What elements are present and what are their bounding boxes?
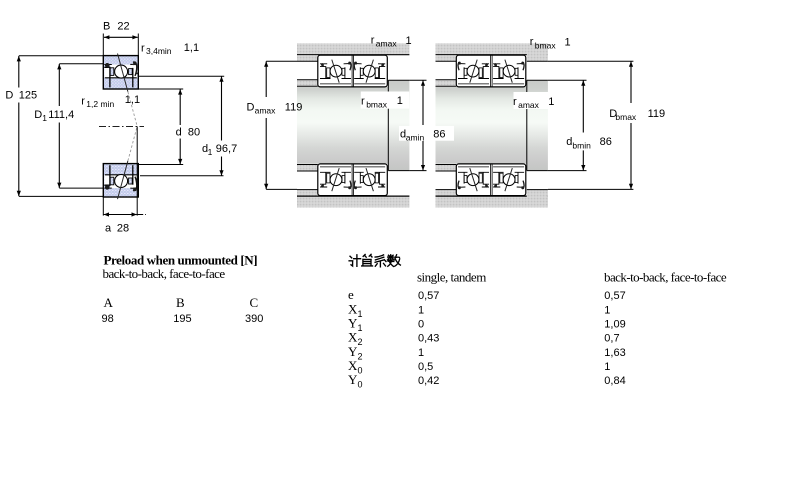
svg-text:B: B: [103, 21, 110, 33]
svg-text:119: 119: [648, 108, 666, 120]
svg-text:3,4min: 3,4min: [146, 46, 172, 56]
svg-text:1: 1: [548, 96, 554, 108]
svg-text:X: X: [348, 301, 358, 316]
svg-text:1: 1: [397, 95, 403, 107]
svg-text:1: 1: [406, 35, 412, 47]
svg-text:amin: amin: [406, 133, 425, 143]
svg-text:back-to-back, face-to-face: back-to-back, face-to-face: [103, 266, 226, 281]
svg-text:111,4: 111,4: [48, 109, 74, 121]
svg-text:Y: Y: [348, 344, 358, 359]
svg-text:28: 28: [117, 223, 129, 235]
svg-text:amax: amax: [518, 100, 540, 110]
svg-text:amax: amax: [255, 105, 277, 115]
svg-text:r: r: [81, 95, 85, 107]
svg-text:r: r: [530, 36, 534, 48]
svg-text:96,7: 96,7: [216, 143, 237, 155]
svg-text:80: 80: [188, 127, 200, 139]
svg-text:1: 1: [604, 361, 610, 373]
svg-text:1: 1: [604, 304, 610, 316]
svg-text:119: 119: [285, 101, 303, 113]
svg-text:r: r: [361, 95, 365, 107]
svg-text:single, tandem: single, tandem: [417, 270, 486, 285]
svg-text:amax: amax: [376, 39, 398, 49]
svg-text:r: r: [141, 42, 145, 54]
svg-text:1: 1: [358, 323, 363, 333]
svg-text:1: 1: [418, 347, 424, 359]
svg-text:D: D: [5, 89, 13, 101]
svg-text:C: C: [250, 295, 258, 310]
svg-text:195: 195: [173, 313, 191, 325]
svg-text:2: 2: [358, 351, 363, 361]
svg-text:bmax: bmax: [366, 99, 388, 109]
svg-text:bmax: bmax: [535, 40, 557, 50]
svg-text:A: A: [104, 295, 114, 310]
svg-text:1: 1: [565, 37, 571, 49]
svg-text:r: r: [371, 34, 375, 46]
svg-text:a: a: [105, 223, 112, 235]
svg-text:e: e: [348, 287, 354, 302]
svg-text:0,57: 0,57: [604, 290, 625, 302]
svg-text:2: 2: [358, 337, 363, 347]
svg-text:r: r: [513, 96, 517, 108]
svg-text:Y: Y: [348, 372, 358, 387]
svg-text:X: X: [348, 330, 358, 345]
svg-text:86: 86: [600, 136, 612, 148]
svg-text:D: D: [34, 109, 42, 121]
svg-text:1: 1: [42, 113, 47, 123]
svg-text:0,57: 0,57: [418, 290, 439, 302]
svg-text:0,42: 0,42: [418, 375, 439, 387]
svg-text:1,1: 1,1: [184, 42, 199, 54]
svg-text:22: 22: [117, 21, 129, 33]
svg-text:0,43: 0,43: [418, 333, 439, 345]
svg-text:1,1: 1,1: [125, 94, 140, 106]
svg-text:0: 0: [358, 365, 363, 375]
svg-text:390: 390: [245, 313, 263, 325]
svg-text:0,5: 0,5: [418, 361, 433, 373]
svg-text:1: 1: [358, 309, 363, 319]
svg-text:bmax: bmax: [615, 112, 637, 122]
svg-text:1,09: 1,09: [604, 319, 625, 331]
svg-text:back-to-back, face-to-face: back-to-back, face-to-face: [604, 270, 727, 285]
svg-text:0: 0: [418, 319, 424, 331]
svg-text:d: d: [176, 127, 182, 139]
svg-text:B: B: [176, 295, 185, 310]
svg-text:X: X: [348, 358, 358, 373]
svg-text:86: 86: [433, 128, 445, 140]
svg-text:1,2 min: 1,2 min: [86, 99, 114, 109]
svg-text:1: 1: [418, 304, 424, 316]
svg-text:Y: Y: [348, 316, 358, 331]
svg-text:0,84: 0,84: [604, 375, 625, 387]
svg-text:1: 1: [208, 147, 213, 157]
svg-text:bmin: bmin: [572, 140, 591, 150]
svg-text:98: 98: [102, 313, 114, 325]
svg-text:125: 125: [19, 89, 37, 101]
svg-text:1,63: 1,63: [604, 347, 625, 359]
svg-text:0,7: 0,7: [604, 333, 619, 345]
svg-text:0: 0: [358, 380, 363, 390]
svg-text:D: D: [247, 101, 255, 113]
